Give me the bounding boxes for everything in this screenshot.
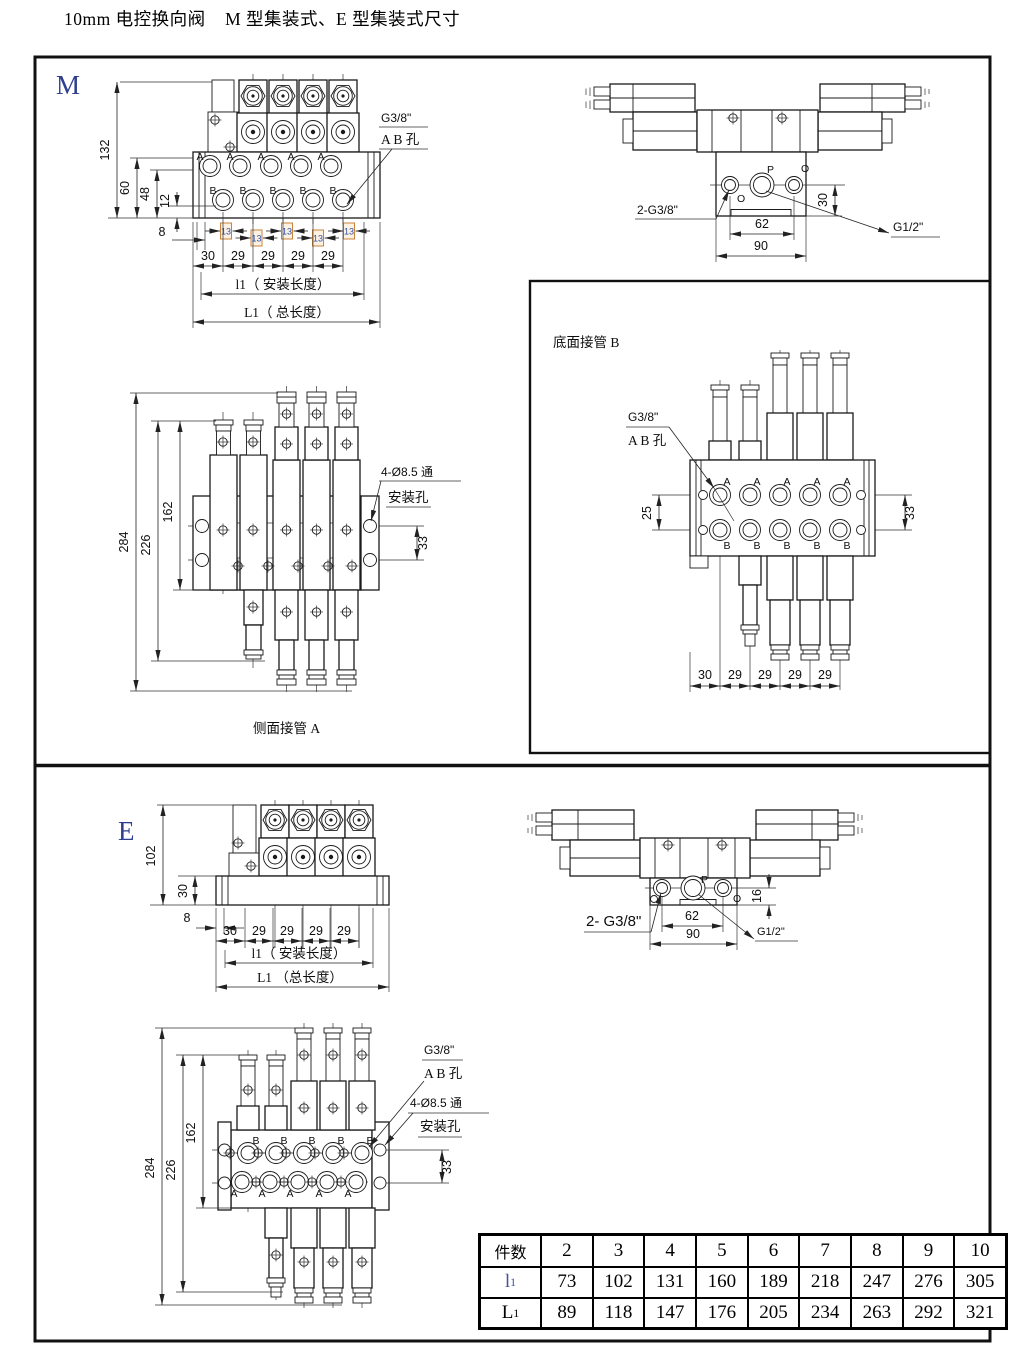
table-cell: 176 <box>695 1297 747 1327</box>
port-label: A <box>258 1188 265 1200</box>
dim-162: 162 <box>161 502 175 523</box>
port-label: B <box>783 540 790 552</box>
port-label: B <box>753 540 760 552</box>
hole-note: 4-Ø8.5 通 <box>381 465 433 479</box>
dim-132: 132 <box>98 140 112 161</box>
port-label: B <box>813 540 820 552</box>
port-label: A <box>723 476 730 488</box>
m-bottom-view: 底面接管 B <box>553 334 917 692</box>
port-label: B <box>209 185 216 197</box>
dim-29: 29 <box>261 249 275 263</box>
m-side-view: P O O 2-G3/8" G1/2" 30 62 90 <box>586 84 940 262</box>
port-label: A <box>753 476 760 488</box>
dim-62: 62 <box>685 909 699 923</box>
table-cell: 234 <box>798 1297 850 1327</box>
table-header-count: 件数 <box>481 1236 540 1266</box>
port-label: B <box>329 185 336 197</box>
table-cell: 8 <box>850 1236 902 1266</box>
port-p-label: P <box>767 164 774 176</box>
pipe-note: G1/2" <box>893 220 923 234</box>
e-side-view: P O 16 62 90 2- G3/8" G1/2" <box>528 810 862 950</box>
dim-16: 16 <box>750 889 764 903</box>
dim-29: 29 <box>280 924 294 938</box>
section-label-m: M <box>56 70 80 100</box>
port-label: B <box>269 185 276 197</box>
dim-29: 29 <box>309 924 323 938</box>
thread-note: G3/8" <box>628 410 658 424</box>
dim-25: 25 <box>640 506 654 520</box>
table-cell: 292 <box>902 1297 954 1327</box>
port-label: A <box>196 151 203 163</box>
dim-29: 29 <box>291 249 305 263</box>
svg-text:13: 13 <box>344 227 354 237</box>
dim-90: 90 <box>686 927 700 941</box>
drawing-canvas: M E A A A <box>0 0 1019 1348</box>
thread-note: G3/8" <box>424 1043 454 1057</box>
thread-note: 2-G3/8" <box>637 203 678 217</box>
pipe-note: G1/2" <box>757 926 785 938</box>
dim-8: 8 <box>159 225 166 239</box>
table-cell: 189 <box>747 1266 799 1296</box>
dim-30: 30 <box>698 668 712 682</box>
e-top-view: B B B B B A A A A A 284 226 162 33 G3/8" <box>143 1023 489 1308</box>
dim-62: 62 <box>755 217 769 231</box>
drawing-page: 10mm 电控换向阀 M 型集装式、E 型集装式尺寸 M E <box>0 0 1019 1348</box>
svg-text:13: 13 <box>282 227 292 237</box>
table-cell: 205 <box>747 1297 799 1327</box>
port-label: A <box>813 476 820 488</box>
port-o-label: O <box>801 163 809 175</box>
port-label: A <box>230 1188 237 1200</box>
mount-length-label: l1（ 安装长度） <box>252 946 347 961</box>
port-label: A <box>226 151 233 163</box>
table-cell: 102 <box>592 1266 644 1296</box>
dim-29: 29 <box>337 924 351 938</box>
table-cell: 247 <box>850 1266 902 1296</box>
thread-note: 2- G3/8" <box>586 913 641 930</box>
table-cell: 147 <box>643 1297 695 1327</box>
table-cell: 5 <box>695 1236 747 1266</box>
port-label: B <box>280 1135 287 1147</box>
mount-length-label: l1（ 安装长度） <box>236 277 331 292</box>
dim-284: 284 <box>117 532 131 553</box>
thread-note: G3/8" <box>381 111 411 125</box>
port-label: A <box>286 1188 293 1200</box>
port-label: B <box>252 1135 259 1147</box>
total-length-label: L1 （总长度） <box>257 970 343 985</box>
table-cell: 2 <box>540 1236 592 1266</box>
dim-12: 12 <box>158 194 172 208</box>
table-cell: 218 <box>798 1266 850 1296</box>
table-cell: 4 <box>643 1236 695 1266</box>
port-label: A <box>287 151 294 163</box>
port-label: B <box>239 185 246 197</box>
dim-30: 30 <box>176 884 190 898</box>
dim-90: 90 <box>754 239 768 253</box>
dim-29: 29 <box>252 924 266 938</box>
port-p-label: P <box>701 874 708 886</box>
dim-29: 29 <box>321 249 335 263</box>
m-front-view: A A A A A B B B B B 132 60 48 12 8 <box>98 74 428 328</box>
total-length-label: L1（ 总长度） <box>244 305 330 320</box>
table-cell: 305 <box>953 1266 1005 1296</box>
hole-note2: 安装孔 <box>388 490 429 505</box>
table-cell: 263 <box>850 1297 902 1327</box>
table-cell: 6 <box>747 1236 799 1266</box>
table-cell: 9 <box>902 1236 954 1266</box>
dim-226: 226 <box>139 535 153 556</box>
dimension-table: 件数 2 3 4 5 6 7 8 9 10 l1 73 102 131 160 … <box>478 1233 1008 1330</box>
table-cell: 321 <box>953 1297 1005 1327</box>
table-cell: 89 <box>540 1297 592 1327</box>
port-label: B <box>299 185 306 197</box>
port-label: A <box>783 476 790 488</box>
dim-284: 284 <box>143 1158 157 1179</box>
dim-8: 8 <box>184 911 191 925</box>
port-o-label: O <box>737 193 745 205</box>
dim-30: 30 <box>816 193 830 207</box>
table-cell: 276 <box>902 1266 954 1296</box>
m-top-view: 284 226 162 33 4-Ø8.5 通 安装孔 侧面接管 A <box>117 386 461 736</box>
svg-text:13: 13 <box>313 234 323 244</box>
port-label: B <box>843 540 850 552</box>
port-o-label: O <box>733 893 741 905</box>
table-header-l1: l1 <box>481 1266 540 1296</box>
table-cell: 10 <box>953 1236 1005 1266</box>
section-label-e: E <box>118 816 135 846</box>
port-label: A <box>344 1188 351 1200</box>
ab-hole-note: A B 孔 <box>381 132 420 147</box>
dim-33: 33 <box>440 1160 454 1174</box>
table-cell: 160 <box>695 1266 747 1296</box>
dim-226: 226 <box>164 1160 178 1181</box>
hole-note2: 安装孔 <box>420 1119 461 1134</box>
dim-29: 29 <box>758 668 772 682</box>
e-front-view: 102 30 8 30 29 29 29 29 l1（ 安装长度） L1 （总长… <box>144 800 389 992</box>
dim-102: 102 <box>144 846 158 867</box>
port-label: B <box>337 1135 344 1147</box>
dim-29: 29 <box>788 668 802 682</box>
dim-48: 48 <box>138 187 152 201</box>
dim-33: 33 <box>903 506 917 520</box>
table-cell: 3 <box>592 1236 644 1266</box>
dim-33: 33 <box>416 536 430 550</box>
dim-162: 162 <box>184 1123 198 1144</box>
offset-13-labels: 13 13 13 13 13 <box>205 223 370 246</box>
ab-hole-note: A B 孔 <box>628 433 667 448</box>
port-label: A <box>843 476 850 488</box>
table-cell: 118 <box>592 1297 644 1327</box>
view-caption: 底面接管 B <box>553 334 619 350</box>
port-label: A <box>317 151 324 163</box>
table-cell: 73 <box>540 1266 592 1296</box>
dim-30: 30 <box>223 924 237 938</box>
ab-hole-note: A B 孔 <box>424 1066 463 1081</box>
dim-29: 29 <box>231 249 245 263</box>
frame-borders <box>35 57 990 1341</box>
port-label: B <box>723 540 730 552</box>
view-caption: 侧面接管 A <box>253 720 320 736</box>
table-header-L1: L1 <box>481 1297 540 1327</box>
dim-29: 29 <box>728 668 742 682</box>
table-cell: 7 <box>798 1236 850 1266</box>
port-label: A <box>257 151 264 163</box>
dim-29: 29 <box>818 668 832 682</box>
svg-text:13: 13 <box>221 227 231 237</box>
hole-note: 4-Ø8.5 通 <box>410 1096 462 1110</box>
table-cell: 131 <box>643 1266 695 1296</box>
port-label: A <box>315 1188 322 1200</box>
port-label: B <box>308 1135 315 1147</box>
dim-30: 30 <box>201 249 215 263</box>
dim-60: 60 <box>118 181 132 195</box>
